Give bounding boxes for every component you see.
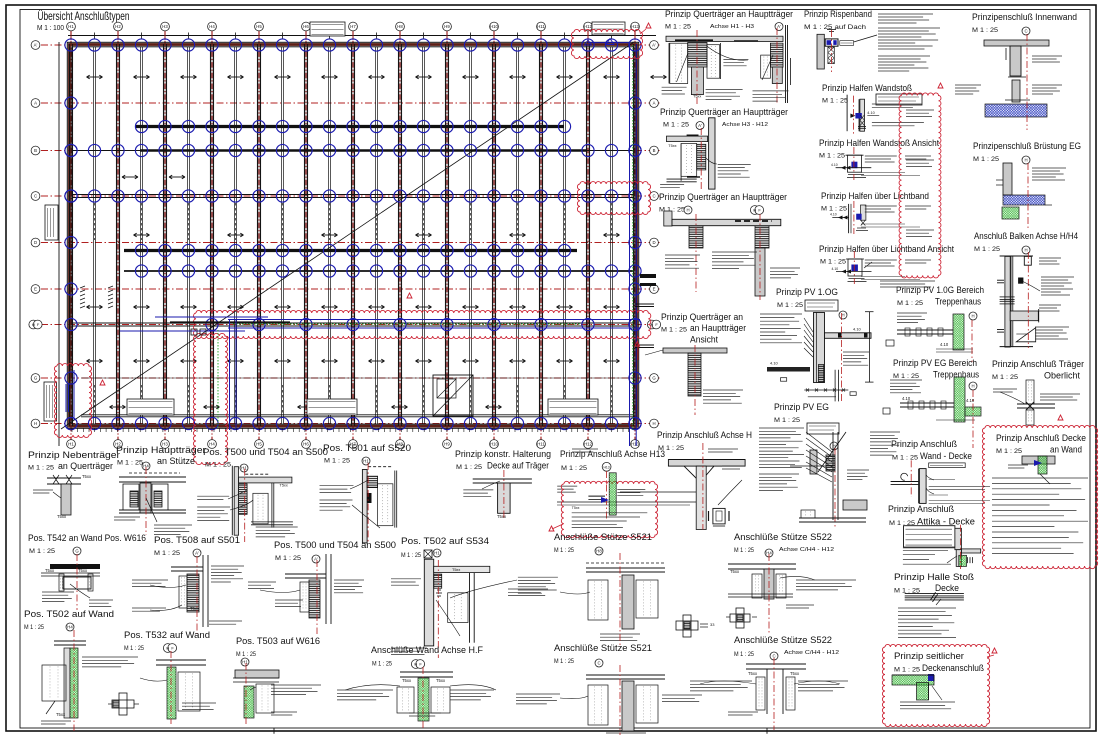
svg-text:M 1 : 25: M 1 : 25	[554, 547, 574, 554]
svg-text:H1: H1	[363, 459, 369, 464]
svg-text:M 1 : 25: M 1 : 25	[972, 27, 999, 34]
svg-text:H6: H6	[303, 442, 309, 447]
svg-text:Prinzip Halfen Wandstoß: Prinzip Halfen Wandstoß	[822, 83, 913, 93]
svg-text:A: A	[653, 101, 656, 106]
svg-text:H: H	[753, 208, 756, 213]
svg-text:H: H	[971, 314, 974, 319]
svg-text:Prinzipenschluß Innenwand: Prinzipenschluß Innenwand	[972, 12, 1077, 22]
svg-text:M 1 : 25: M 1 : 25	[275, 555, 302, 562]
svg-text:M 1 : 25: M 1 : 25	[973, 156, 1000, 163]
svg-text:Prinzip PV 1.0G Bereich: Prinzip PV 1.0G Bereich	[896, 285, 984, 295]
svg-text:M 1 : 25: M 1 : 25	[401, 552, 421, 559]
svg-text:M 1 : 25: M 1 : 25	[661, 327, 688, 334]
svg-text:M 1 : 25: M 1 : 25	[24, 624, 44, 631]
svg-text:an Wand: an Wand	[1050, 445, 1082, 455]
svg-text:M 1 : 25: M 1 : 25	[324, 458, 351, 465]
svg-text:Anschlüße Stütze S522: Anschlüße Stütze S522	[734, 532, 832, 542]
svg-text:H: H	[166, 646, 169, 651]
svg-text:H9: H9	[444, 442, 450, 447]
svg-text:H: H	[414, 662, 417, 667]
svg-text:M 1 : 25: M 1 : 25	[205, 462, 232, 469]
svg-text:H1: H1	[434, 551, 440, 556]
svg-text:Anschlüße Stütze S522: Anschlüße Stütze S522	[734, 635, 832, 645]
svg-text:Pos. T501 auf S520: Pos. T501 auf S520	[323, 443, 411, 453]
svg-text:C: C	[597, 661, 600, 666]
svg-text:M 1 : 25: M 1 : 25	[554, 658, 574, 665]
svg-text:Prinzip PV 1.OG: Prinzip PV 1.OG	[776, 287, 838, 297]
svg-text:H1: H1	[68, 24, 74, 29]
svg-text:M 1 : 25: M 1 : 25	[996, 448, 1023, 455]
svg-text:H10: H10	[490, 24, 498, 29]
svg-text:A: A	[34, 101, 37, 106]
svg-text:C: C	[652, 194, 655, 199]
svg-text:A': A'	[777, 24, 781, 29]
svg-text:Prinzip Anschluß: Prinzip Anschluß	[891, 439, 958, 449]
svg-text:Prinzip Querträger an Hauptträ: Prinzip Querträger an Hauptträger	[660, 107, 788, 117]
svg-text:H1: H1	[242, 660, 248, 665]
svg-text:M 1 : 25: M 1 : 25	[819, 153, 846, 160]
svg-text:T5xx: T5xx	[57, 514, 67, 519]
svg-text:Ansicht: Ansicht	[690, 335, 719, 345]
svg-text:M 1 : 25: M 1 : 25	[456, 464, 483, 471]
svg-text:H4: H4	[209, 442, 215, 447]
svg-text:Pos. T500 und T504 an S500: Pos. T500 und T504 an S500	[203, 447, 328, 457]
svg-text:M 1 : 25: M 1 : 25	[974, 246, 1001, 253]
svg-text:Wand - Decke: Wand - Decke	[920, 451, 972, 461]
svg-text:M 1 : 25: M 1 : 25	[665, 24, 692, 31]
svg-text:Prinzip Halfen Wandstoß Ansich: Prinzip Halfen Wandstoß Ansicht	[819, 138, 940, 148]
svg-text:H: H	[32, 322, 35, 327]
svg-text:H11: H11	[537, 24, 545, 29]
svg-text:M 1 : 25: M 1 : 25	[897, 300, 924, 307]
svg-text:A': A'	[195, 551, 199, 556]
svg-text:Prinzip Anschluß Decke: Prinzip Anschluß Decke	[996, 433, 1086, 443]
svg-text:Achse H1 - H3: Achse H1 - H3	[710, 24, 754, 30]
svg-text:Pos. T500 und T504 an S500: Pos. T500 und T504 an S500	[274, 540, 396, 550]
svg-text:A': A'	[34, 43, 38, 48]
svg-text:C: C	[1024, 29, 1027, 34]
svg-text:H: H	[652, 421, 655, 426]
svg-text:A': A'	[652, 43, 656, 48]
svg-text:M 1 : 25: M 1 : 25	[372, 661, 392, 668]
svg-text:Prinzip Anschluß Achse H13: Prinzip Anschluß Achse H13	[560, 449, 665, 459]
svg-text:M 1 : 25: M 1 : 25	[894, 667, 921, 674]
svg-text:Übersicht Anschlußtypen: Übersicht Anschlußtypen	[38, 9, 130, 23]
svg-text:Pos. T542 an Wand Pos. W616: Pos. T542 an Wand Pos. W616	[28, 533, 146, 543]
svg-text:T5xx: T5xx	[730, 569, 740, 574]
svg-text:T5xx: T5xx	[668, 144, 676, 148]
svg-text:Attika - Decke: Attika - Decke	[917, 517, 975, 527]
svg-text:H: H	[34, 421, 37, 426]
svg-text:H1: H1	[68, 442, 74, 447]
svg-text:Anschlüße Stütze S521: Anschlüße Stütze S521	[554, 643, 652, 653]
svg-text:M 1 : 25: M 1 : 25	[892, 455, 919, 462]
svg-text:M 1 : 25: M 1 : 25	[734, 651, 754, 658]
svg-text:Oberlicht: Oberlicht	[1044, 371, 1081, 381]
svg-text:H4: H4	[209, 24, 215, 29]
svg-text:M 1 : 25: M 1 : 25	[117, 460, 144, 467]
svg-text:H13: H13	[631, 442, 639, 447]
svg-text:Prinzip seitlicher: Prinzip seitlicher	[894, 651, 964, 661]
svg-text:M 1 : 25: M 1 : 25	[154, 550, 181, 557]
svg-text:T5xx: T5xx	[436, 678, 446, 683]
svg-text:M 1 : 25: M 1 : 25	[734, 547, 754, 554]
svg-text:Achse C/H4 - H12: Achse C/H4 - H12	[779, 547, 834, 553]
svg-text:T5xx: T5xx	[790, 671, 800, 676]
svg-text:T5xx: T5xx	[402, 678, 412, 683]
svg-text:Achse C/H4 - H12: Achse C/H4 - H12	[784, 650, 839, 656]
svg-text:H7: H7	[350, 24, 356, 29]
svg-text:H10: H10	[490, 442, 498, 447]
svg-text:Prinzip Halfen über Lichtband: Prinzip Halfen über Lichtband Ansicht	[819, 244, 955, 254]
svg-text:an Querträger: an Querträger	[58, 461, 113, 471]
svg-text:4.10: 4.10	[966, 398, 975, 403]
svg-text:Prinzip konstr. Halterung: Prinzip konstr. Halterung	[455, 449, 551, 459]
svg-text:H13: H13	[631, 24, 639, 29]
svg-text:H12: H12	[584, 442, 592, 447]
svg-text:M 1 : 100: M 1 : 100	[37, 23, 64, 32]
svg-text:4.10: 4.10	[867, 111, 874, 115]
svg-text:E: E	[653, 287, 656, 292]
svg-text:M 1 : 25: M 1 : 25	[821, 206, 848, 213]
svg-text:Prinzip Querträger an Hauptträ: Prinzip Querträger an Hauptträger	[659, 192, 787, 202]
svg-text:T5xx: T5xx	[82, 474, 92, 479]
svg-text:C: C	[34, 194, 37, 199]
svg-text:Anschlüße Stütze S521: Anschlüße Stütze S521	[554, 532, 652, 542]
svg-text:Pos. T508 auf S501: Pos. T508 auf S501	[154, 535, 240, 545]
svg-text:M 1 : 25: M 1 : 25	[992, 374, 1019, 381]
svg-text:Anschluß Balken Achse H/H4: Anschluß Balken Achse H/H4	[974, 231, 1078, 241]
svg-text:H3: H3	[162, 24, 168, 29]
svg-text:M 1 : 25: M 1 : 25	[124, 645, 144, 652]
svg-text:4.10: 4.10	[902, 396, 911, 401]
svg-text:H11: H11	[537, 442, 545, 447]
svg-text:E: E	[34, 287, 37, 292]
svg-text:A': A'	[698, 123, 702, 128]
svg-text:Decke auf Träger: Decke auf Träger	[487, 461, 549, 471]
svg-text:Prinzip Anschluß: Prinzip Anschluß	[888, 504, 955, 514]
svg-text:M 1 : 25 auf Dach: M 1 : 25 auf Dach	[804, 24, 867, 31]
svg-text:H8: H8	[596, 549, 602, 554]
svg-text:Prinzip Anschluß Träger: Prinzip Anschluß Träger	[992, 359, 1084, 369]
svg-text:Prinzip Halfen über Lichtband: Prinzip Halfen über Lichtband	[821, 191, 929, 201]
svg-text:Decke: Decke	[935, 583, 959, 593]
svg-text:C: C	[772, 654, 775, 659]
svg-text:T5xx: T5xx	[497, 514, 507, 519]
svg-text:M 1 : 25: M 1 : 25	[777, 302, 804, 309]
svg-text:Prinzip Anschluß Achse H: Prinzip Anschluß Achse H	[657, 430, 752, 440]
svg-text:Prinzipenschluß Brüstung EG: Prinzipenschluß Brüstung EG	[973, 141, 1081, 151]
svg-text:H: H	[1024, 158, 1027, 163]
svg-text:H: H	[971, 384, 974, 389]
svg-text:M 1 : 25: M 1 : 25	[893, 373, 920, 380]
svg-text:Pos. T503 auf W616: Pos. T503 auf W616	[236, 636, 320, 646]
svg-text:H12: H12	[584, 24, 592, 29]
svg-text:H: H	[686, 208, 689, 213]
svg-text:H6: H6	[303, 24, 309, 29]
svg-text:H2: H2	[115, 24, 121, 29]
svg-text:T5xx: T5xx	[56, 712, 66, 717]
svg-text:M 1 : 25: M 1 : 25	[29, 548, 56, 555]
svg-text:B: B	[34, 148, 37, 153]
svg-text:T5xx: T5xx	[190, 606, 200, 611]
svg-text:4.10: 4.10	[770, 361, 779, 366]
svg-text:M 1 : 25: M 1 : 25	[236, 651, 256, 658]
svg-text:M 1 : 25: M 1 : 25	[663, 122, 690, 129]
svg-text:Pos. T502 auf S534: Pos. T502 auf S534	[401, 536, 489, 546]
svg-text:H4: H4	[67, 625, 73, 630]
svg-text:H13: H13	[603, 465, 609, 469]
svg-text:A': A'	[314, 557, 318, 562]
svg-text:H: H	[1024, 248, 1027, 253]
svg-text:Prinzip PV EG Bereich: Prinzip PV EG Bereich	[893, 358, 977, 368]
svg-text:D: D	[34, 240, 37, 245]
svg-text:H8: H8	[397, 24, 403, 29]
svg-text:4.10: 4.10	[831, 163, 838, 167]
svg-text:T5xx: T5xx	[452, 568, 460, 572]
svg-text:Prinzip Halle Stoß: Prinzip Halle Stoß	[894, 572, 975, 582]
svg-text:B: B	[653, 148, 656, 153]
svg-text:M 1 : 25: M 1 : 25	[822, 98, 849, 105]
svg-text:Prinzip Querträger an: Prinzip Querträger an	[661, 312, 743, 322]
svg-text:Anschlüße Wand Achse H.F: Anschlüße Wand Achse H.F	[371, 645, 484, 655]
svg-text:4.10: 4.10	[830, 213, 837, 217]
svg-text:4.10: 4.10	[940, 342, 949, 347]
svg-text:an Stütze: an Stütze	[157, 456, 195, 466]
svg-text:Pos. T532 auf Wand: Pos. T532 auf Wand	[124, 630, 210, 640]
svg-text:T5xx: T5xx	[748, 671, 758, 676]
svg-text:H9: H9	[444, 24, 450, 29]
svg-text:M 1 : 25: M 1 : 25	[774, 417, 801, 424]
svg-text:M 1 : 25: M 1 : 25	[28, 465, 55, 472]
svg-text:T5xx: T5xx	[572, 506, 580, 510]
svg-text:H5: H5	[256, 442, 262, 447]
svg-text:T5xx: T5xx	[78, 568, 88, 573]
svg-text:T5xx: T5xx	[280, 484, 288, 488]
svg-text:T5xx: T5xx	[45, 568, 55, 573]
svg-text:Pos. T502 auf Wand: Pos. T502 auf Wand	[24, 609, 114, 619]
svg-text:T5xx: T5xx	[693, 95, 701, 99]
svg-text:Prinzip Nebenträger: Prinzip Nebenträger	[28, 450, 120, 460]
svg-text:D: D	[652, 240, 655, 245]
svg-text:M 1 : 25: M 1 : 25	[820, 259, 847, 266]
svg-text:an Hauptträger: an Hauptträger	[690, 323, 746, 333]
svg-text:Treppenhaus: Treppenhaus	[935, 297, 982, 307]
svg-text:4.10: 4.10	[853, 327, 862, 332]
svg-text:Achse H3 - H12: Achse H3 - H12	[722, 122, 768, 128]
svg-text:H5: H5	[256, 24, 262, 29]
svg-text:33: 33	[710, 622, 715, 627]
svg-text:Prinzip Rispenband: Prinzip Rispenband	[804, 9, 872, 19]
svg-text:Deckenanschluß: Deckenanschluß	[922, 663, 985, 673]
svg-text:M 1 : 25: M 1 : 25	[561, 465, 588, 472]
svg-text:Prinzip Querträger an Hauptträ: Prinzip Querträger an Hauptträger	[665, 9, 793, 19]
svg-text:4.10: 4.10	[832, 267, 839, 271]
svg-text:Prinzip Hauptträger: Prinzip Hauptträger	[116, 445, 206, 455]
svg-text:Prinzip PV EG: Prinzip PV EG	[774, 402, 829, 412]
